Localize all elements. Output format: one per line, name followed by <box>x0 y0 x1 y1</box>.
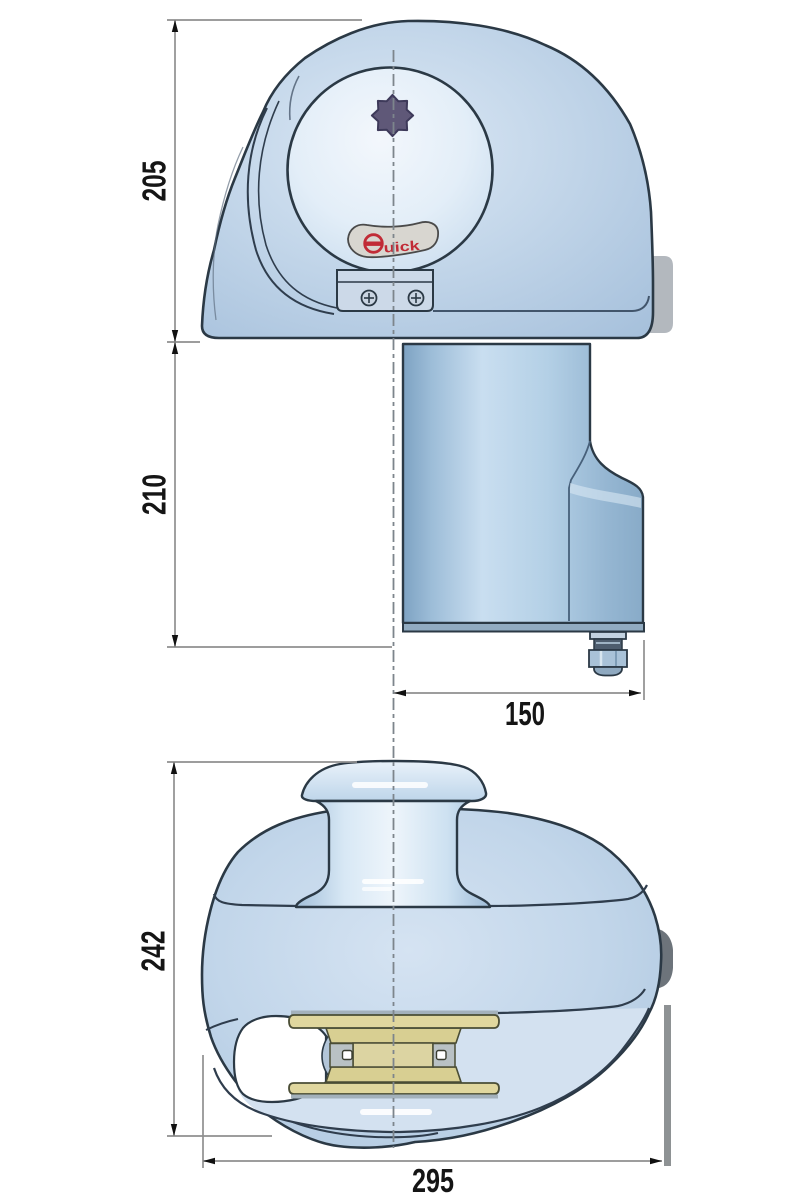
svg-text:210: 210 <box>136 474 173 515</box>
svg-text:242: 242 <box>135 931 172 972</box>
svg-text:205: 205 <box>136 161 173 202</box>
svg-text:295: 295 <box>412 1162 454 1199</box>
svg-text:uick: uick <box>383 238 421 256</box>
svg-text:150: 150 <box>505 695 545 732</box>
